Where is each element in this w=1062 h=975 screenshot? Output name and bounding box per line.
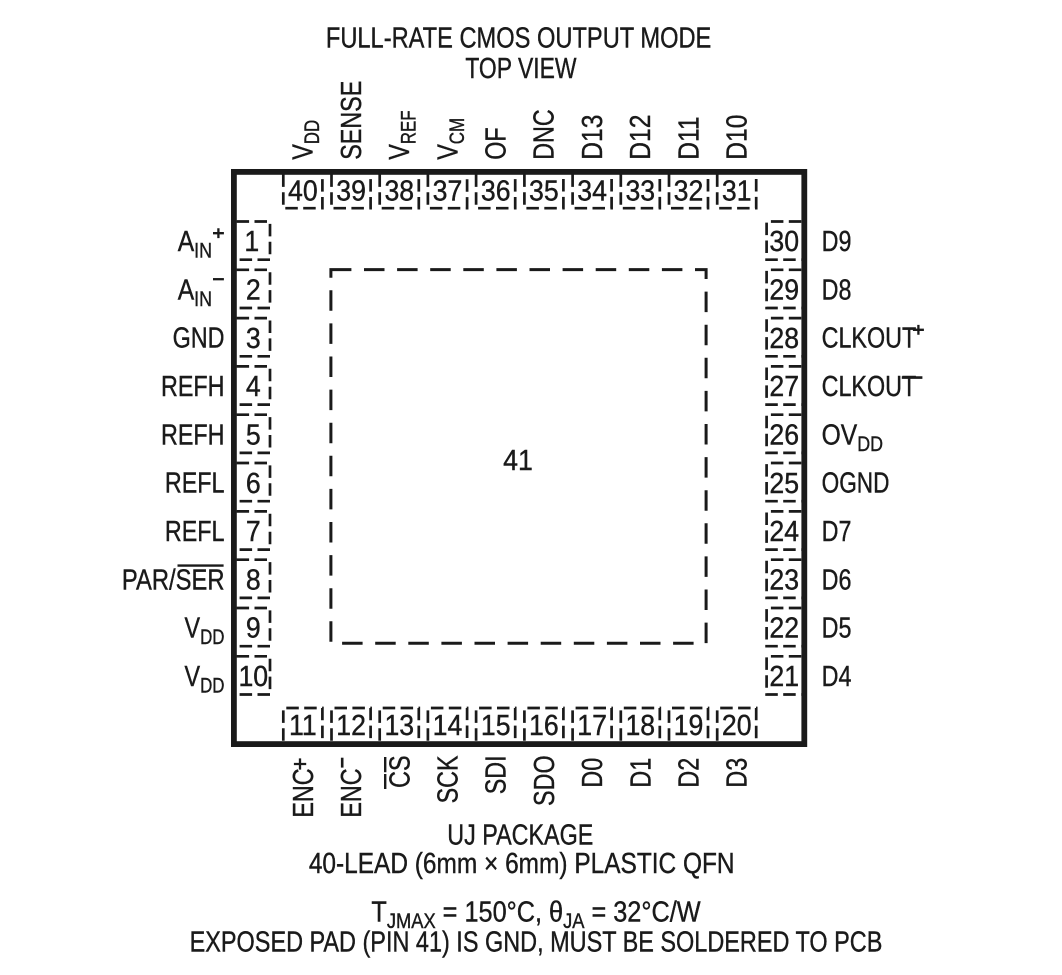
- svg-text:21: 21: [769, 660, 799, 692]
- svg-text:35: 35: [529, 174, 559, 206]
- svg-text:22: 22: [769, 612, 799, 644]
- svg-text:20: 20: [722, 709, 752, 741]
- svg-text:9: 9: [246, 612, 261, 644]
- svg-text:34: 34: [577, 174, 607, 206]
- svg-text:28: 28: [769, 322, 799, 354]
- svg-text:OGND: OGND: [822, 466, 890, 499]
- svg-text:8: 8: [246, 563, 261, 595]
- svg-text:10: 10: [238, 660, 268, 692]
- svg-text:CS: CS: [383, 755, 416, 787]
- svg-text:AIN: AIN: [178, 274, 212, 312]
- svg-text:D13: D13: [576, 115, 608, 160]
- svg-text:CLKOUT: CLKOUT: [822, 321, 917, 354]
- svg-text:1: 1: [244, 225, 259, 257]
- svg-text:29: 29: [769, 273, 799, 305]
- svg-text:D0: D0: [576, 758, 609, 788]
- svg-text:OVDD: OVDD: [822, 418, 883, 456]
- svg-text:3: 3: [246, 322, 261, 354]
- svg-text:VDD: VDD: [286, 120, 324, 160]
- svg-text:24: 24: [769, 515, 799, 547]
- svg-text:VDD: VDD: [185, 611, 225, 649]
- svg-text:41: 41: [503, 444, 533, 476]
- svg-text:D2: D2: [672, 758, 705, 788]
- svg-text:2: 2: [246, 273, 261, 305]
- svg-text:REFH: REFH: [161, 370, 225, 403]
- svg-text:ENC: ENC: [286, 768, 319, 817]
- svg-text:6: 6: [246, 467, 261, 499]
- svg-text:D10: D10: [721, 115, 753, 160]
- svg-text:D9: D9: [822, 225, 852, 258]
- svg-text:D6: D6: [822, 563, 852, 596]
- svg-text:UJ PACKAGE: UJ PACKAGE: [447, 818, 593, 851]
- svg-text:31: 31: [722, 174, 752, 206]
- svg-text:VDD: VDD: [185, 659, 225, 697]
- svg-text:D5: D5: [822, 611, 852, 644]
- svg-text:REFL: REFL: [165, 466, 225, 499]
- svg-text:OF: OF: [479, 127, 512, 159]
- svg-text:D3: D3: [720, 758, 753, 788]
- svg-text:38: 38: [384, 174, 414, 206]
- svg-text:17: 17: [577, 709, 607, 741]
- svg-text:D8: D8: [822, 273, 852, 306]
- svg-text:D1: D1: [624, 758, 657, 788]
- svg-text:D12: D12: [624, 115, 656, 160]
- svg-text:32: 32: [674, 174, 704, 206]
- svg-text:36: 36: [481, 174, 511, 206]
- svg-text:37: 37: [433, 174, 463, 206]
- svg-text:FULL-RATE CMOS OUTPUT MODE: FULL-RATE CMOS OUTPUT MODE: [326, 21, 711, 54]
- svg-text:VCM: VCM: [431, 118, 469, 160]
- svg-text:DNC: DNC: [527, 109, 560, 160]
- svg-text:12: 12: [336, 709, 366, 741]
- svg-text:SDI: SDI: [479, 755, 512, 794]
- svg-text:27: 27: [769, 370, 799, 402]
- svg-text:TOP VIEW: TOP VIEW: [465, 51, 576, 84]
- svg-text:REFH: REFH: [161, 418, 225, 451]
- svg-text:D11: D11: [672, 116, 704, 159]
- svg-text:11: 11: [289, 709, 317, 741]
- svg-text:40: 40: [288, 174, 318, 206]
- svg-text:SENSE: SENSE: [334, 81, 367, 160]
- svg-text:19: 19: [674, 709, 704, 741]
- svg-text:SDO: SDO: [527, 755, 560, 806]
- svg-text:ENC: ENC: [335, 768, 368, 817]
- svg-text:D4: D4: [822, 659, 852, 692]
- svg-text:14: 14: [433, 709, 463, 741]
- svg-text:30: 30: [769, 225, 799, 257]
- svg-text:GND: GND: [173, 321, 225, 354]
- svg-text:23: 23: [769, 563, 799, 595]
- svg-text:5: 5: [246, 418, 261, 450]
- svg-text:16: 16: [529, 709, 559, 741]
- svg-text:AIN: AIN: [178, 225, 212, 263]
- svg-text:4: 4: [246, 370, 261, 402]
- svg-text:SCK: SCK: [431, 755, 464, 803]
- svg-text:26: 26: [769, 418, 799, 450]
- svg-text:7: 7: [246, 515, 261, 547]
- svg-text:40-LEAD (6mm × 6mm) PLASTIC QF: 40-LEAD (6mm × 6mm) PLASTIC QFN: [309, 847, 735, 879]
- svg-text:25: 25: [769, 467, 799, 499]
- svg-text:39: 39: [336, 174, 366, 206]
- svg-text:CLKOUT: CLKOUT: [822, 370, 917, 403]
- svg-text:33: 33: [625, 174, 655, 206]
- svg-text:VREF: VREF: [383, 110, 421, 159]
- svg-text:PAR/SER: PAR/SER: [122, 563, 225, 596]
- svg-text:REFL: REFL: [165, 515, 225, 548]
- svg-text:D7: D7: [822, 515, 852, 548]
- svg-text:13: 13: [384, 709, 414, 741]
- svg-text:18: 18: [625, 709, 655, 741]
- svg-text:EXPOSED PAD (PIN 41) IS GND, M: EXPOSED PAD (PIN 41) IS GND, MUST BE SOL…: [190, 925, 883, 958]
- svg-text:15: 15: [481, 709, 511, 741]
